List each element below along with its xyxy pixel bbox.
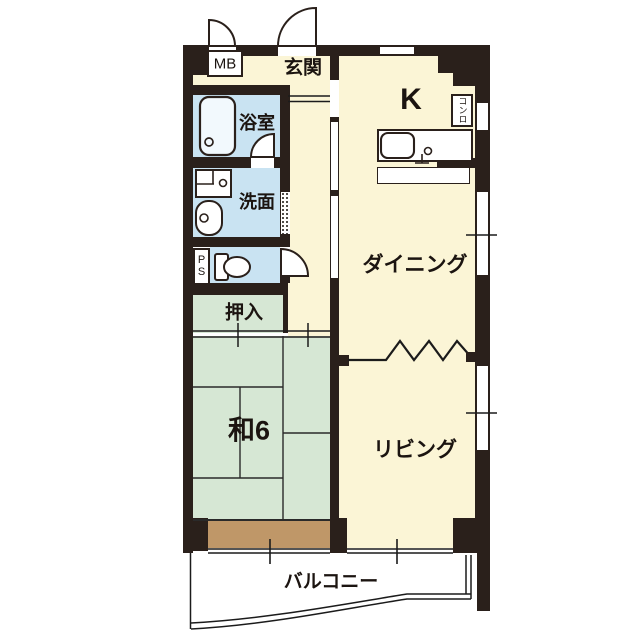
fusuma-line [193, 323, 330, 347]
pipe-space-label: PS [196, 254, 207, 278]
floorplan: MB 玄関 K コンロ 浴室 洗面 PS 押入 和6 ダイニング リビング バル… [0, 0, 640, 640]
closet-label: 押入 [225, 304, 263, 323]
stove-label: コンロ [458, 97, 467, 124]
bathtub-icon [200, 97, 235, 155]
living-label: リビング [373, 440, 457, 461]
south-windows [208, 539, 453, 564]
japanese-room-label: 和6 [228, 418, 270, 445]
meter-box-label: MB [214, 57, 237, 72]
kitchen-label: K [400, 85, 422, 115]
kitchen-sink-icon [381, 133, 432, 163]
toilet-icon [215, 254, 250, 280]
entrance-step-line [288, 96, 330, 102]
window-ticks [466, 235, 497, 413]
washbasin-icon [196, 201, 222, 235]
zigzag-partition-icon [348, 341, 475, 362]
floorplan-linework [0, 0, 640, 640]
bathroom-label: 浴室 [239, 114, 275, 132]
entrance-label: 玄関 [284, 59, 322, 78]
washing-machine-pan-icon [196, 170, 231, 197]
dining-label: ダイニング [363, 255, 468, 276]
balcony-label: バルコニー [284, 573, 379, 592]
washroom-label: 洗面 [239, 193, 275, 211]
